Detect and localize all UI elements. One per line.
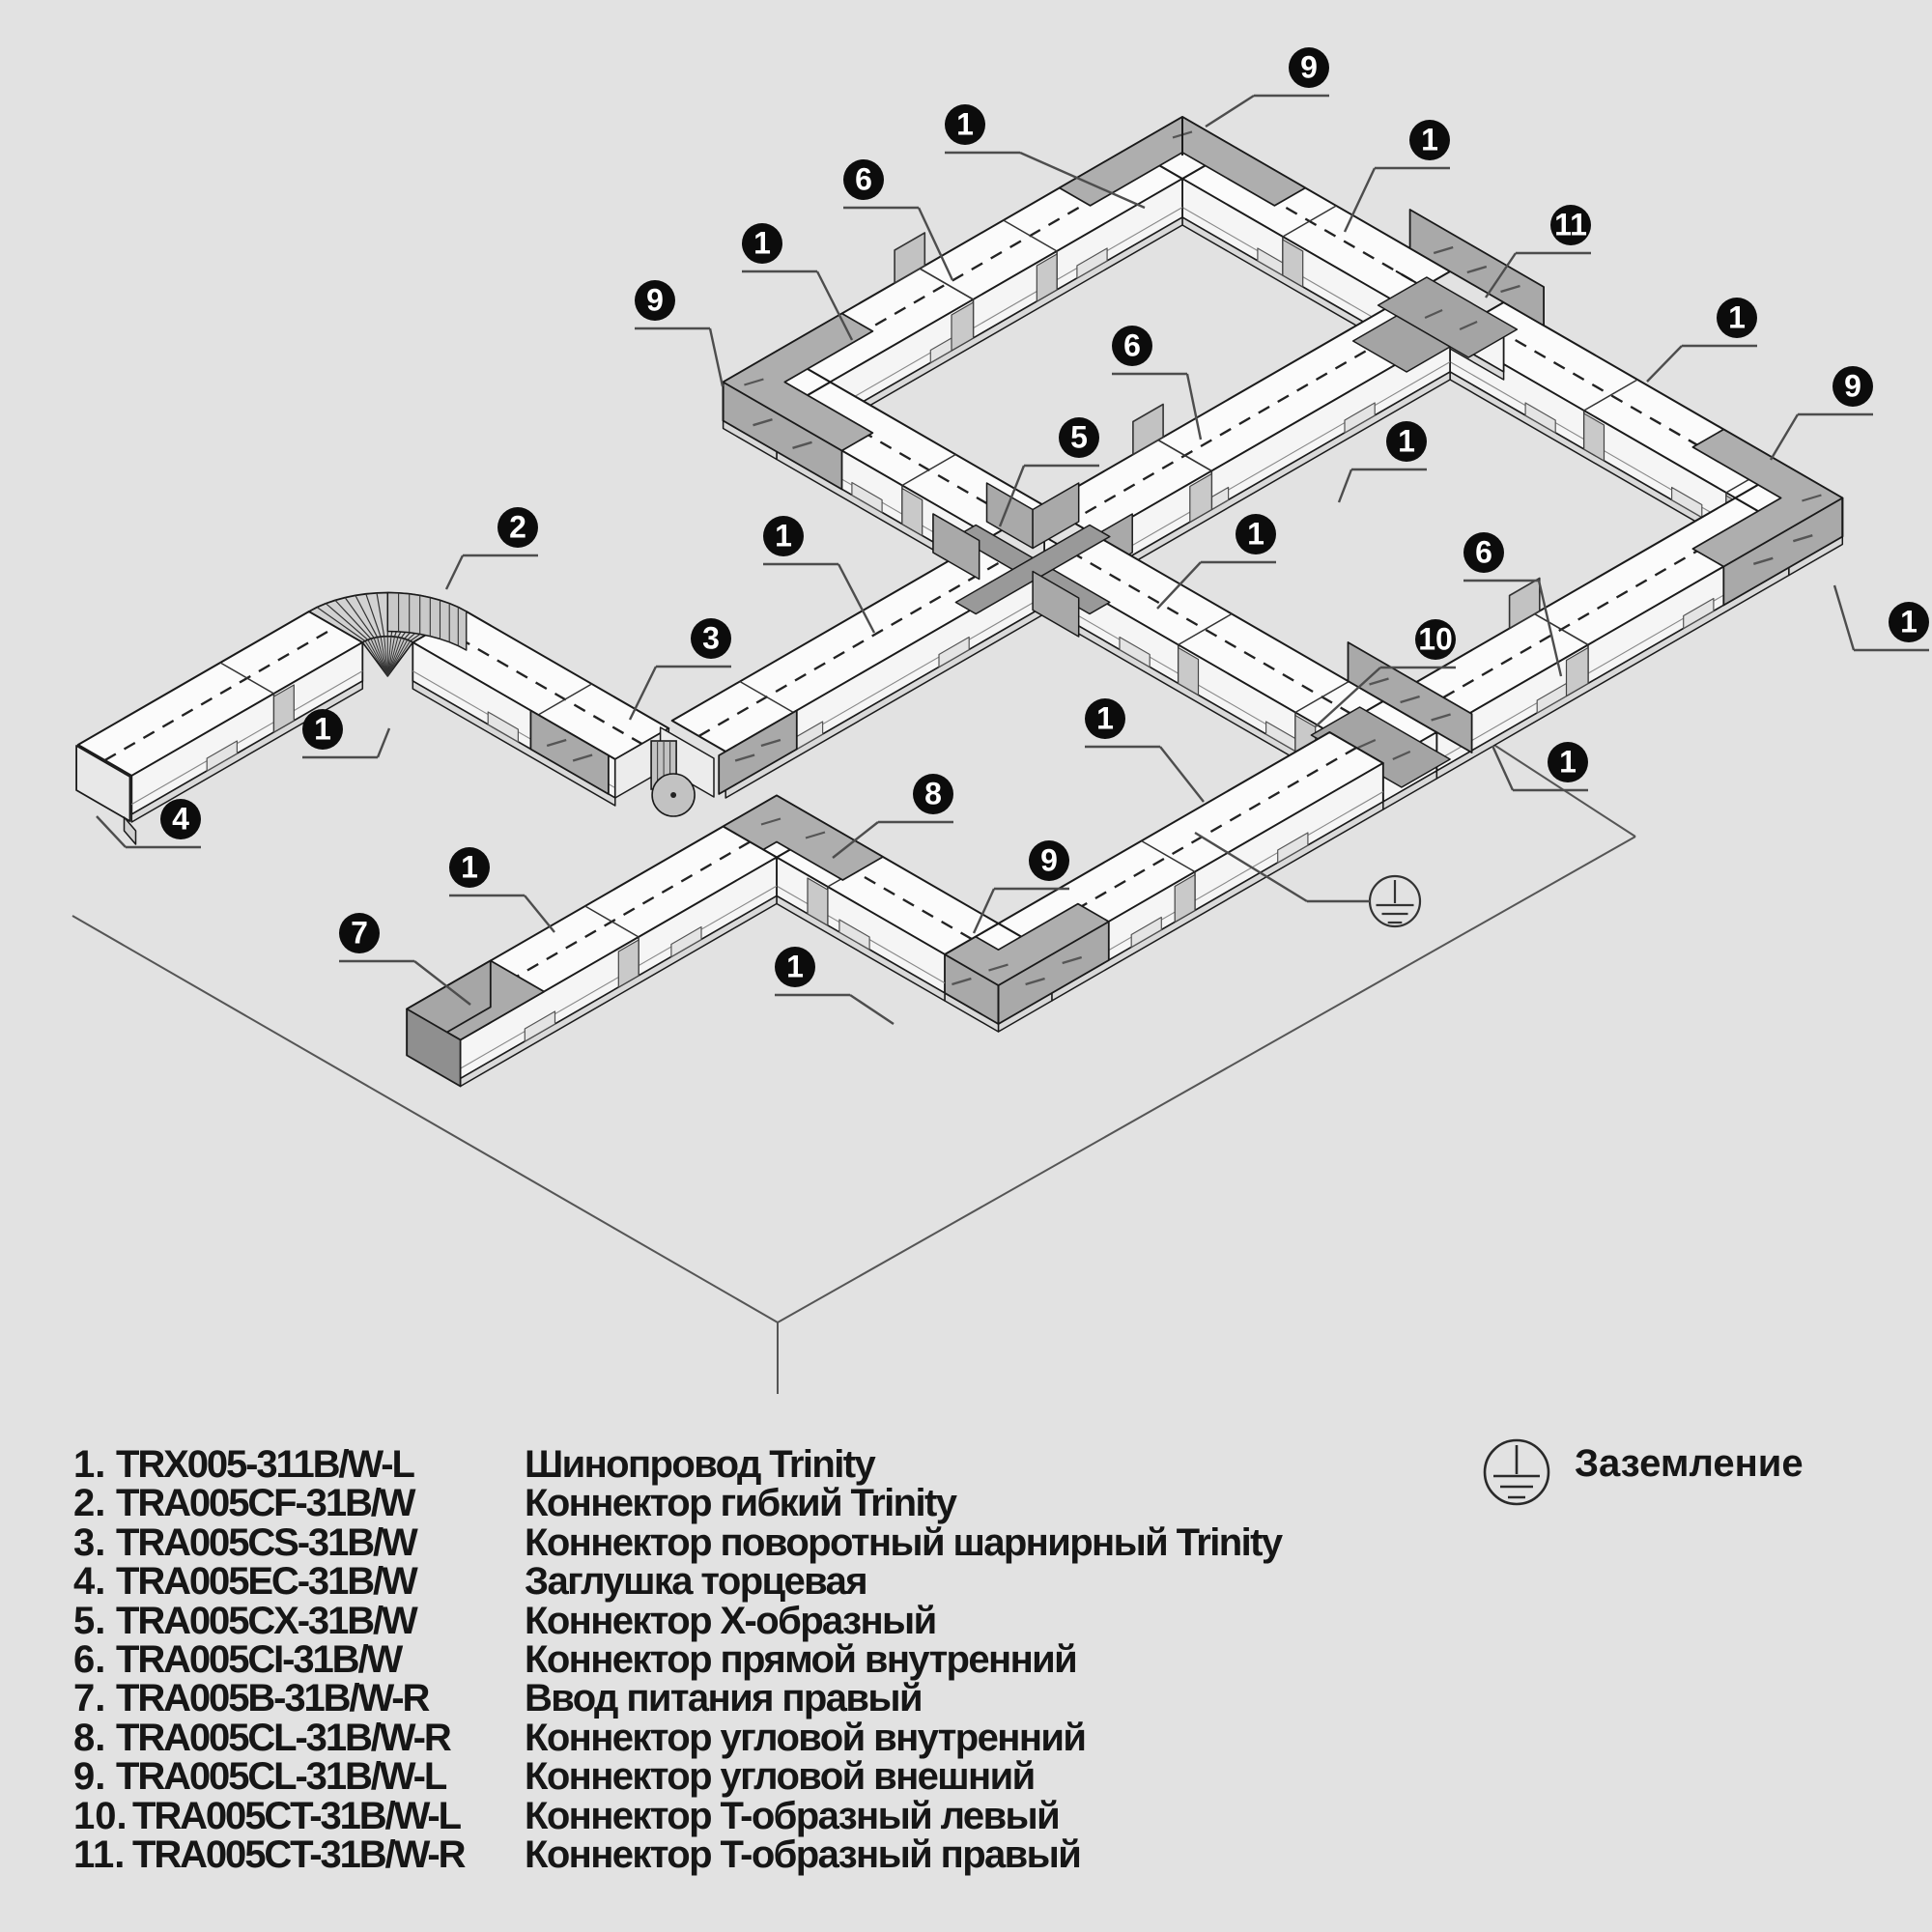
svg-text:6: 6: [1475, 535, 1492, 570]
svg-text:9: 9: [1844, 369, 1861, 404]
svg-text:9: 9: [646, 283, 664, 318]
svg-text:1: 1: [461, 850, 478, 885]
svg-text:9: 9: [1300, 50, 1318, 85]
svg-text:11: 11: [1554, 208, 1587, 242]
svg-text:1: 1: [1398, 424, 1415, 459]
svg-text:7: 7: [351, 916, 368, 951]
svg-text:5: 5: [1070, 420, 1088, 455]
svg-text:1: 1: [786, 950, 804, 984]
svg-text:1: 1: [1096, 701, 1114, 736]
svg-text:6: 6: [1123, 328, 1141, 363]
svg-text:1: 1: [1247, 517, 1264, 552]
svg-text:1: 1: [1421, 123, 1438, 157]
svg-text:2: 2: [509, 510, 526, 545]
svg-text:1: 1: [956, 107, 974, 142]
svg-text:1: 1: [314, 712, 331, 747]
svg-text:1: 1: [1559, 745, 1577, 780]
svg-text:1: 1: [775, 519, 792, 554]
svg-text:9: 9: [1040, 843, 1058, 878]
svg-text:3: 3: [702, 621, 720, 656]
svg-text:4: 4: [172, 802, 189, 837]
svg-text:1: 1: [1900, 605, 1918, 639]
svg-text:1: 1: [1728, 300, 1746, 335]
svg-text:6: 6: [855, 162, 872, 197]
svg-text:10: 10: [1418, 622, 1453, 657]
svg-text:8: 8: [924, 777, 942, 811]
svg-text:1: 1: [753, 226, 771, 261]
